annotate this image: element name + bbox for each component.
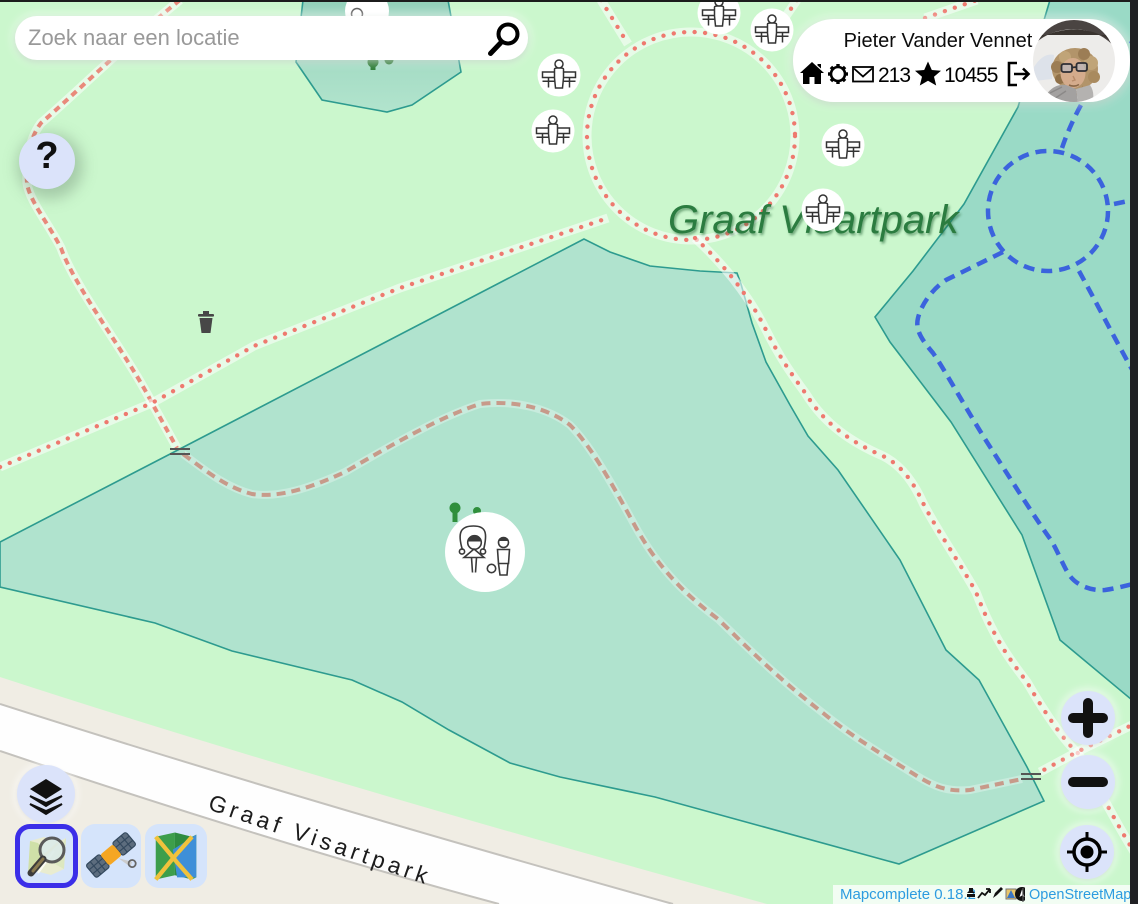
svg-text:213: 213 <box>878 64 910 87</box>
svg-text:10455: 10455 <box>944 64 998 87</box>
